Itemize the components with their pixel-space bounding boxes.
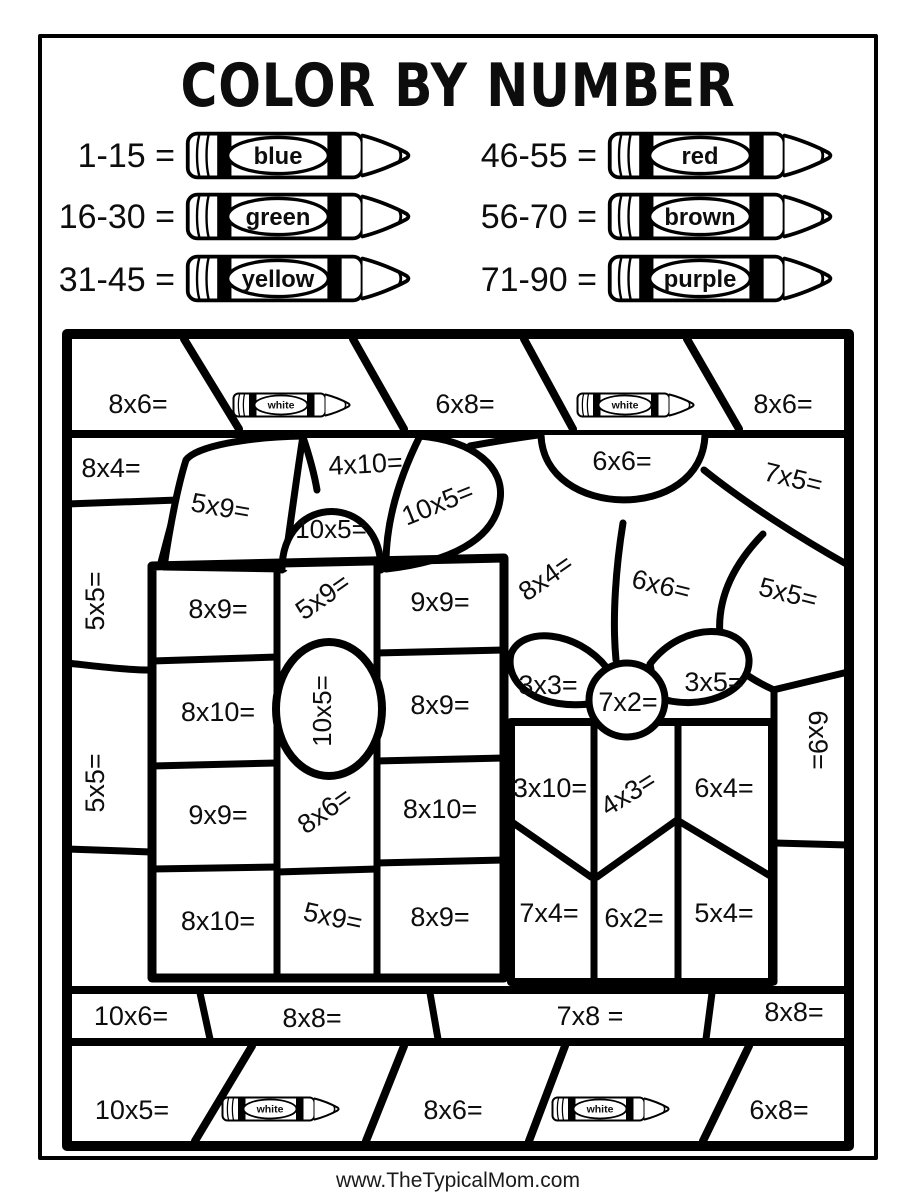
- cell-label: 8x10=: [403, 794, 477, 824]
- cell-label: 8x6=: [108, 389, 167, 419]
- white-crayon-icon: white: [223, 1098, 339, 1121]
- cell-label: 8x9=: [410, 902, 469, 932]
- cell-label: 9x9=: [410, 587, 469, 617]
- white-crayon-icon: white: [553, 1098, 669, 1121]
- worksheet-page: COLOR BY NUMBER 1-15 = blue 16-30 = gree…: [0, 0, 913, 1200]
- cell-label: 6x2=: [604, 903, 663, 933]
- cell-label: 8x9=: [410, 690, 469, 720]
- white-crayon-icon: white: [578, 394, 694, 417]
- cell-label: 7x2=: [598, 687, 657, 717]
- crayon-color-label: brown: [664, 204, 735, 231]
- cell-label: 6x4=: [694, 773, 753, 803]
- worksheet-canvas: COLOR BY NUMBER 1-15 = blue 16-30 = gree…: [0, 0, 913, 1200]
- crayon-color-label: purple: [664, 266, 737, 293]
- legend-range: 31-45 =: [59, 261, 175, 299]
- cell-label: 3x3=: [518, 670, 577, 700]
- crayon-icon: green: [188, 195, 409, 239]
- footer-url: www.TheTypicalMom.com: [335, 1169, 580, 1192]
- crayon-color-label: white: [611, 400, 639, 412]
- legend-range: 56-70 =: [481, 198, 597, 236]
- crayon-color-label: white: [586, 1104, 614, 1116]
- cell-label: 6x9=: [803, 710, 833, 769]
- crayon-color-label: blue: [254, 143, 303, 170]
- crayon-icon: purple: [610, 257, 831, 301]
- cell-label: 6x6=: [592, 446, 651, 476]
- cell-label: 8x10=: [181, 697, 255, 727]
- crayon-icon: red: [610, 134, 831, 178]
- cell-label: 6x8=: [435, 389, 494, 419]
- cell-label: 4x10=: [328, 447, 404, 481]
- cell-label: 8x8=: [282, 1003, 341, 1033]
- cell-label: 8x10=: [181, 906, 255, 936]
- crayon-icon: yellow: [188, 257, 409, 301]
- cell-label: 10x5=: [295, 514, 367, 544]
- cell-label: 3x10=: [513, 773, 587, 803]
- crayon-color-label: yellow: [242, 266, 315, 293]
- cell-label: 5x5=: [80, 571, 110, 630]
- crayon-color-label: green: [246, 204, 311, 231]
- cell-label: 5x4=: [694, 898, 753, 928]
- cell-label: 5x5=: [80, 753, 110, 812]
- crayon-color-label: white: [256, 1104, 284, 1116]
- cell-label: 8x9=: [188, 594, 247, 624]
- cell-label: 8x8=: [764, 997, 823, 1027]
- white-crayon-icon: white: [234, 394, 350, 417]
- crayon-icon: blue: [188, 134, 409, 178]
- legend-range: 71-90 =: [481, 261, 597, 299]
- cell-label: 7x4=: [519, 898, 578, 928]
- legend-range: 1-15 =: [78, 137, 175, 175]
- cell-label: 8x4=: [81, 453, 140, 483]
- cell-label: 7x8 =: [557, 1001, 624, 1031]
- crayon-color-label: red: [682, 143, 719, 170]
- cell-label: 3x5=: [684, 667, 743, 697]
- crayon-icon: brown: [610, 195, 831, 239]
- cell-label: 10x5=: [95, 1095, 169, 1125]
- cell-label: 9x9=: [188, 800, 247, 830]
- legend-range: 16-30 =: [59, 198, 175, 236]
- page-title: COLOR BY NUMBER: [181, 51, 736, 121]
- cell-label: 8x6=: [753, 389, 812, 419]
- legend-range: 46-55 =: [481, 137, 597, 175]
- cell-label: 10x6=: [94, 1001, 168, 1031]
- crayon-color-label: white: [267, 400, 295, 412]
- cell-label: 6x8=: [749, 1095, 808, 1125]
- cell-label: 8x6=: [423, 1095, 482, 1125]
- cell-label: 10x5=: [307, 675, 337, 747]
